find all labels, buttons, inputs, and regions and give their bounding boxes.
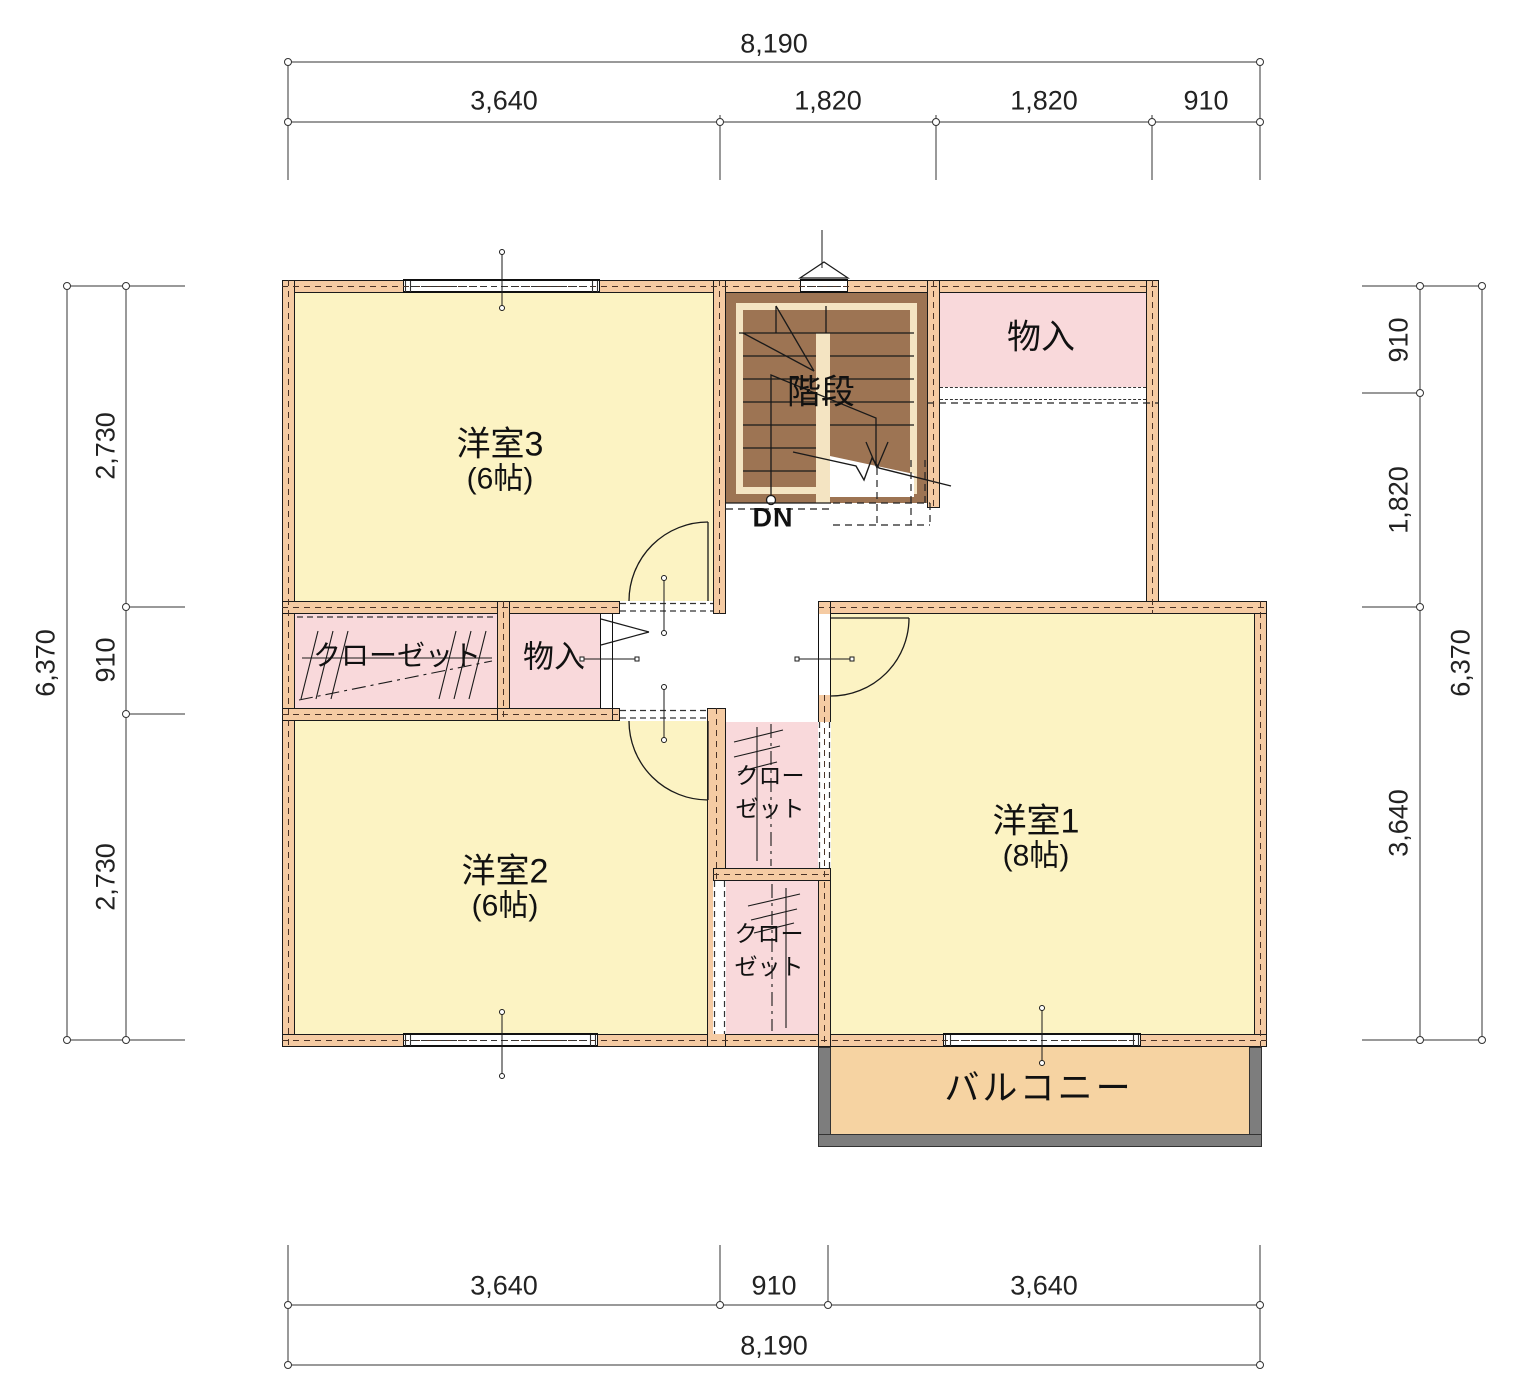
- door-closet-lower: [713, 881, 726, 1034]
- wall-room3-south: [282, 601, 620, 614]
- room1-label: 洋室1 (8帖): [993, 803, 1080, 872]
- closet-upper-label: クロー ゼット: [736, 760, 805, 827]
- room3-size: (6帖): [457, 463, 544, 495]
- dimension-lines-left: [64, 283, 186, 1044]
- wall-closet-main-east: [497, 601, 510, 721]
- room2-size: (6帖): [462, 890, 549, 922]
- room2-name: 洋室2: [462, 853, 549, 890]
- balcony-railing-bottom: [818, 1134, 1262, 1147]
- room2-label: 洋室2 (6帖): [462, 853, 549, 922]
- balcony-label: バルコニー: [944, 1070, 1133, 1108]
- balcony-railing-right: [1249, 1047, 1262, 1147]
- closet-lower-line1: クロー: [735, 918, 804, 951]
- floor-plan: 洋室3 (6帖) 洋室2 (6帖) 洋室1 (8帖) 階段 DN 物入 物入 ク…: [0, 0, 1516, 1397]
- dim-bottom-seg3: 3,640: [1010, 1271, 1078, 1302]
- dim-top-seg4: 910: [1183, 86, 1228, 117]
- dim-left-seg3: 2,730: [91, 843, 122, 911]
- door-storage-top: [940, 387, 1146, 400]
- balcony-railing-left: [818, 1047, 831, 1147]
- closet-lower-line2: ゼット: [735, 951, 804, 984]
- dim-right-seg2: 1,820: [1384, 466, 1415, 534]
- dim-bottom-seg1: 3,640: [470, 1271, 538, 1302]
- dim-left-total: 6,370: [31, 629, 62, 697]
- closet-lower-label: クロー ゼット: [735, 918, 804, 985]
- room1-size: (8帖): [993, 840, 1080, 872]
- closet-main-label: クローゼット: [313, 641, 481, 671]
- room3-label: 洋室3 (6帖): [457, 426, 544, 495]
- dim-top-seg3: 1,820: [1010, 86, 1078, 117]
- stairs-dn-label: DN: [753, 503, 794, 532]
- wall-right-lower: [1254, 601, 1267, 1047]
- room1-name: 洋室1: [993, 803, 1080, 840]
- door-storage-hall: [600, 614, 613, 708]
- door-closet-upper: [818, 722, 831, 868]
- dim-left-seg2: 910: [91, 637, 122, 682]
- dim-right-seg3: 3,640: [1384, 789, 1415, 857]
- room3-name: 洋室3: [457, 426, 544, 463]
- storage-hall-label: 物入: [523, 640, 585, 673]
- wall-stair-east: [927, 280, 940, 508]
- storage-top-label: 物入: [1007, 320, 1075, 357]
- window-room1-south: [943, 1033, 1141, 1047]
- wall-stair-west: [713, 280, 726, 614]
- closet-upper-line2: ゼット: [736, 793, 805, 826]
- dim-top-total: 8,190: [740, 29, 808, 60]
- wall-left: [282, 280, 295, 1047]
- stairs-label: 階段: [787, 375, 855, 412]
- wall-room1-north: [818, 601, 1267, 614]
- window-stair-north: [800, 279, 848, 293]
- window-room2-south: [403, 1033, 598, 1047]
- dimension-lines-top: [285, 59, 1264, 181]
- awning-window-mark: [800, 262, 848, 278]
- dim-right-seg1: 910: [1384, 317, 1415, 362]
- door-room1-opening: [818, 614, 831, 695]
- wall-right-upper: [1146, 280, 1159, 614]
- dim-right-total: 6,370: [1446, 629, 1477, 697]
- dim-top-seg1: 3,640: [470, 86, 538, 117]
- window-room3-north: [403, 279, 600, 293]
- dim-top-seg2: 1,820: [794, 86, 862, 117]
- dim-bottom-total: 8,190: [740, 1331, 808, 1362]
- dim-bottom-seg2: 910: [751, 1271, 796, 1302]
- closet-upper-line1: クロー: [736, 760, 805, 793]
- dim-left-seg1: 2,730: [91, 412, 122, 480]
- wall-closet-divider: [713, 868, 831, 881]
- wall-storage-hall-south: [497, 708, 613, 721]
